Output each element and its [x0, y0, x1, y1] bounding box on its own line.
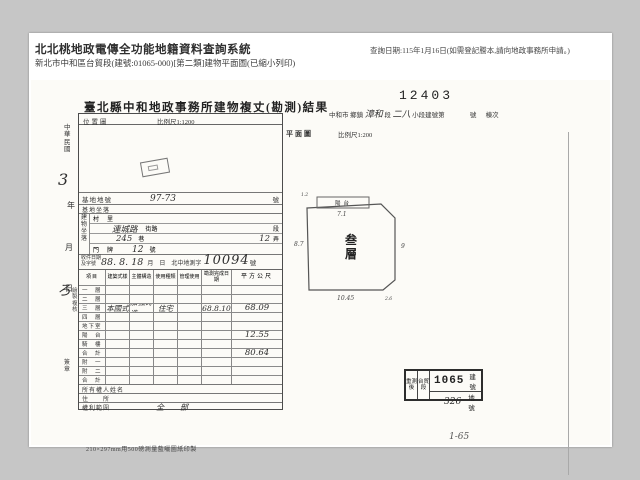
bottom-dim: 10.45	[337, 295, 354, 302]
table-cell	[105, 358, 129, 366]
door-number-handwritten: 12	[132, 245, 143, 255]
table-cell	[201, 295, 231, 303]
measure-table-header: 項目 建築式樣 主體構造 使用種類 管理使用 勘測完成日期 平方公尺	[79, 269, 282, 285]
section-handwritten: 漳和	[365, 110, 383, 120]
balcony-label: 陽台	[335, 199, 352, 207]
lane-unit: 巷	[138, 234, 144, 243]
table-cell	[129, 331, 153, 339]
location-sketch	[140, 158, 170, 178]
survey-form: 位置圖 比例尺1:1200 基地地號 97-73 號 基地坐落 建物坐落	[78, 113, 283, 410]
scanned-document: 12403 臺北縣中和地政事務所建物複丈(勘測)結果 中和市 鄉鎮 漳和 段 二…	[31, 80, 610, 445]
table-cell	[129, 295, 153, 303]
address-group-label: 建物坐落	[79, 214, 90, 254]
section-unit: 段	[384, 112, 391, 119]
table-cell	[105, 295, 129, 303]
table-cell	[177, 313, 201, 321]
row-label: 附 二	[79, 367, 105, 375]
table-cell	[129, 322, 153, 330]
col-survey-date: 勘測完成日期	[201, 270, 231, 285]
table-cell	[177, 286, 201, 294]
table-cell	[129, 358, 153, 366]
document-subtitle: 新北市中和區台貿段(建號:01065-000)[第二類]建物平面圖(已縮小列印)	[35, 57, 295, 69]
table-cell	[105, 313, 129, 321]
table-cell	[105, 349, 129, 357]
table-cell	[153, 295, 177, 303]
lane-row: 245 巷 12 弄	[90, 234, 282, 244]
building-number-unit: 建號	[469, 371, 481, 391]
lane-handwritten: 245	[116, 234, 132, 244]
table-cell	[231, 295, 282, 303]
table-cell	[201, 349, 231, 357]
table-cell	[177, 322, 201, 330]
query-date-note: 查詢日期:115年1月16日(如需登記謄本,請向地政事務所申請。)	[370, 45, 570, 56]
table-cell: 加強磚造	[129, 304, 153, 312]
site-parcel-unit: 號	[273, 194, 283, 204]
table-cell	[231, 286, 282, 294]
door-unit: 號	[149, 245, 155, 254]
table-cell	[105, 376, 129, 384]
document-page: 北北桃地政電傳全功能地籍資料查詢系統 新北市中和區台貿段(建號:01065-00…	[29, 33, 612, 447]
table-cell	[105, 340, 129, 348]
row-label: 四 層	[79, 313, 105, 321]
table-cell	[201, 376, 231, 384]
cell-value-handwritten: 加強磚造	[130, 304, 153, 312]
table-row: 附 一	[79, 357, 282, 366]
corner-dim-tl: 1.2	[301, 192, 308, 198]
rights-scope-label: 權利範圍	[79, 403, 110, 412]
door-label: 門 牌	[90, 245, 114, 254]
site-parcel-value: 97-73	[150, 194, 176, 204]
floor-plan-scale: 比例尺1:200	[338, 129, 372, 139]
receipt-label: 收件日期 及字號	[79, 256, 101, 268]
sheet-number: 12403	[399, 88, 453, 103]
table-cell	[177, 349, 201, 357]
rights-scope-row: 權利範圍 全 部	[79, 402, 282, 411]
site-parcel-row: 基地地號 97-73 號	[79, 192, 282, 204]
table-cell	[105, 331, 129, 339]
handwritten-mark-year: 3	[58, 170, 68, 189]
table-cell: 68.8.10	[201, 304, 231, 312]
cell-value-handwritten: 80.64	[245, 349, 269, 357]
signature-label: 簽章	[64, 360, 72, 374]
cell-value-handwritten: 12.55	[245, 331, 269, 339]
row-label: 附 一	[79, 358, 105, 366]
table-cell	[177, 295, 201, 303]
table-cell	[153, 322, 177, 330]
building-number-row: 1065 建號	[430, 371, 481, 392]
table-cell	[201, 286, 231, 294]
table-cell	[177, 376, 201, 384]
row-label: 陽 台	[79, 331, 105, 339]
app-window: 北北桃地政電傳全功能地籍資料查詢系統 新北市中和區台貿段(建號:01065-00…	[0, 0, 640, 480]
land-number-row: 326 地號	[430, 392, 481, 412]
table-cell	[105, 286, 129, 294]
col-style: 建築式樣	[105, 270, 129, 285]
owner-name-row: 所有權人姓名	[79, 384, 282, 393]
receipt-date-handwritten: 88. 8. 18	[101, 257, 143, 268]
col-item: 項目	[79, 270, 105, 285]
table-row: 一 層	[79, 285, 282, 294]
resurvey-stamp-box: 重測後 台貿段 1065 建號 326 地號	[404, 369, 483, 401]
building-count-unit: 棟次	[486, 112, 499, 119]
col-structure: 主體構造	[129, 270, 153, 285]
table-cell	[153, 358, 177, 366]
table-cell	[153, 376, 177, 384]
left-dim: 8.7	[294, 241, 304, 248]
year-label: 年	[67, 200, 75, 211]
table-cell	[231, 322, 282, 330]
site-location-row: 基地坐落	[79, 204, 282, 213]
land-number: 326	[444, 397, 461, 407]
row-label: 三 層	[79, 304, 105, 312]
table-cell	[231, 313, 282, 321]
page-title: 北北桃地政電傳全功能地籍資料查詢系統	[35, 41, 251, 57]
table-cell	[153, 313, 177, 321]
table-cell: 68.09	[231, 304, 282, 312]
location-map-header: 位置圖 比例尺1:1200	[79, 114, 282, 125]
table-cell	[129, 313, 153, 321]
resurvey-label: 重測後	[406, 371, 418, 399]
township-line: 中和市 鄉鎮 漳和 段 二八 小段建號第 號 棟次	[329, 107, 499, 120]
table-cell	[105, 367, 129, 375]
table-cell	[153, 286, 177, 294]
table-cell	[153, 340, 177, 348]
floor-plan-drawing: 陽台 7.1 8.7 9 10.45 1.2 2.6 叁 層	[293, 188, 423, 313]
table-cell	[177, 367, 201, 375]
stamp-section-label: 台貿段	[418, 371, 430, 399]
cell-value-handwritten: 68.09	[245, 304, 269, 312]
segment-unit: 段	[273, 224, 282, 233]
table-cell	[153, 367, 177, 375]
svg-text:層: 層	[345, 247, 357, 261]
month-label: 月	[65, 242, 73, 253]
table-cell: 本國式	[105, 304, 129, 312]
row-label: 騎 樓	[79, 340, 105, 348]
table-cell	[177, 358, 201, 366]
row-label: 一 層	[79, 286, 105, 294]
table-cell: 80.64	[231, 349, 282, 357]
cell-value-handwritten: 68.8.10	[202, 304, 231, 312]
table-cell	[153, 349, 177, 357]
balcony-dim: 7.1	[337, 211, 347, 218]
table-row: 二 層	[79, 294, 282, 303]
table-cell	[129, 367, 153, 375]
table-cell	[201, 331, 231, 339]
table-cell	[231, 367, 282, 375]
land-number-unit: 地號	[468, 392, 481, 412]
table-cell	[201, 340, 231, 348]
table-row: 地下室	[79, 321, 282, 330]
table-cell	[231, 340, 282, 348]
village-label: 村 里	[90, 214, 114, 223]
table-cell	[105, 322, 129, 330]
small-section-handwritten: 二八	[393, 110, 411, 120]
table-cell	[129, 349, 153, 357]
col-management: 管理使用	[177, 270, 201, 285]
cell-value-handwritten: 住宅	[158, 304, 173, 312]
building-number: 1065	[434, 375, 464, 387]
street-label: 街路	[146, 224, 158, 233]
measure-rows: 一 層二 層三 層本國式加強磚造住宅68.8.1068.09四 層地下室陽 台1…	[79, 285, 282, 384]
table-row: 四 層	[79, 312, 282, 321]
table-cell	[201, 358, 231, 366]
street-row: 連城路 街路 段	[90, 224, 282, 234]
receipt-number-handwritten: 10094	[203, 253, 249, 268]
row-label: 二 層	[79, 295, 105, 303]
col-use-type: 使用種類	[153, 270, 177, 285]
table-cell	[129, 376, 153, 384]
floor-plan-svg: 陽台 7.1 8.7 9 10.45 1.2 2.6 叁 層	[293, 188, 423, 313]
table-cell	[153, 331, 177, 339]
row-label: 合 計	[79, 349, 105, 357]
right-dim: 9	[401, 243, 405, 250]
table-cell	[231, 376, 282, 384]
table-cell	[231, 358, 282, 366]
number-unit: 號	[470, 112, 477, 119]
table-cell	[129, 340, 153, 348]
table-row: 附 二	[79, 366, 282, 375]
rights-scope-value: 全 部	[156, 402, 192, 413]
table-cell	[129, 286, 153, 294]
col-area: 平方公尺	[231, 270, 282, 285]
table-cell: 住宅	[153, 304, 177, 312]
table-cell	[201, 313, 231, 321]
table-cell	[177, 340, 201, 348]
table-cell	[177, 331, 201, 339]
small-section-unit: 小段建號第	[412, 112, 445, 119]
address-group: 建物坐落 村 里 連城路 街路 段 245 巷 12	[79, 213, 282, 254]
table-cell	[201, 322, 231, 330]
row-label: 地下室	[79, 322, 105, 330]
table-row: 三 層本國式加強磚造住宅68.8.1068.09	[79, 303, 282, 312]
receipt-number-unit: 號	[250, 257, 259, 267]
floor-plan-label: 平面圖	[286, 129, 313, 139]
table-row: 騎 樓	[79, 339, 282, 348]
table-row: 合 計	[79, 375, 282, 384]
page-fold-line	[568, 132, 569, 475]
receipt-row: 收件日期 及字號 88. 8. 18 月 日 北中地測字 10094 號	[79, 254, 282, 269]
era-label: 中華民國	[64, 124, 73, 154]
alley-handwritten: 12	[259, 234, 270, 244]
alley-unit: 弄	[270, 234, 282, 243]
table-cell: 12.55	[231, 331, 282, 339]
location-map-label: 位置圖	[83, 116, 109, 126]
table-cell	[177, 304, 201, 312]
table-row: 陽 台12.55	[79, 330, 282, 339]
receipt-printed-template: 月 日 北中地測字	[147, 258, 201, 267]
city-label: 中和市	[329, 112, 349, 119]
location-map-scale: 比例尺1:1200	[157, 116, 195, 126]
site-parcel-label: 基地地號	[79, 194, 112, 204]
row-label: 合 計	[79, 376, 105, 384]
cell-value-handwritten: 本國式	[106, 304, 129, 312]
table-cell	[201, 367, 231, 375]
corner-dim-br: 2.6	[384, 296, 392, 302]
township-unit: 鄉鎮	[350, 112, 363, 119]
handwritten-page-note: 1-65	[449, 432, 469, 442]
floor-count-label: 叁	[344, 232, 358, 247]
table-row: 合 計80.64	[79, 348, 282, 357]
paper-spec-footnote: 210×297mm用500磅測量藍曬圖紙印製	[86, 444, 197, 453]
